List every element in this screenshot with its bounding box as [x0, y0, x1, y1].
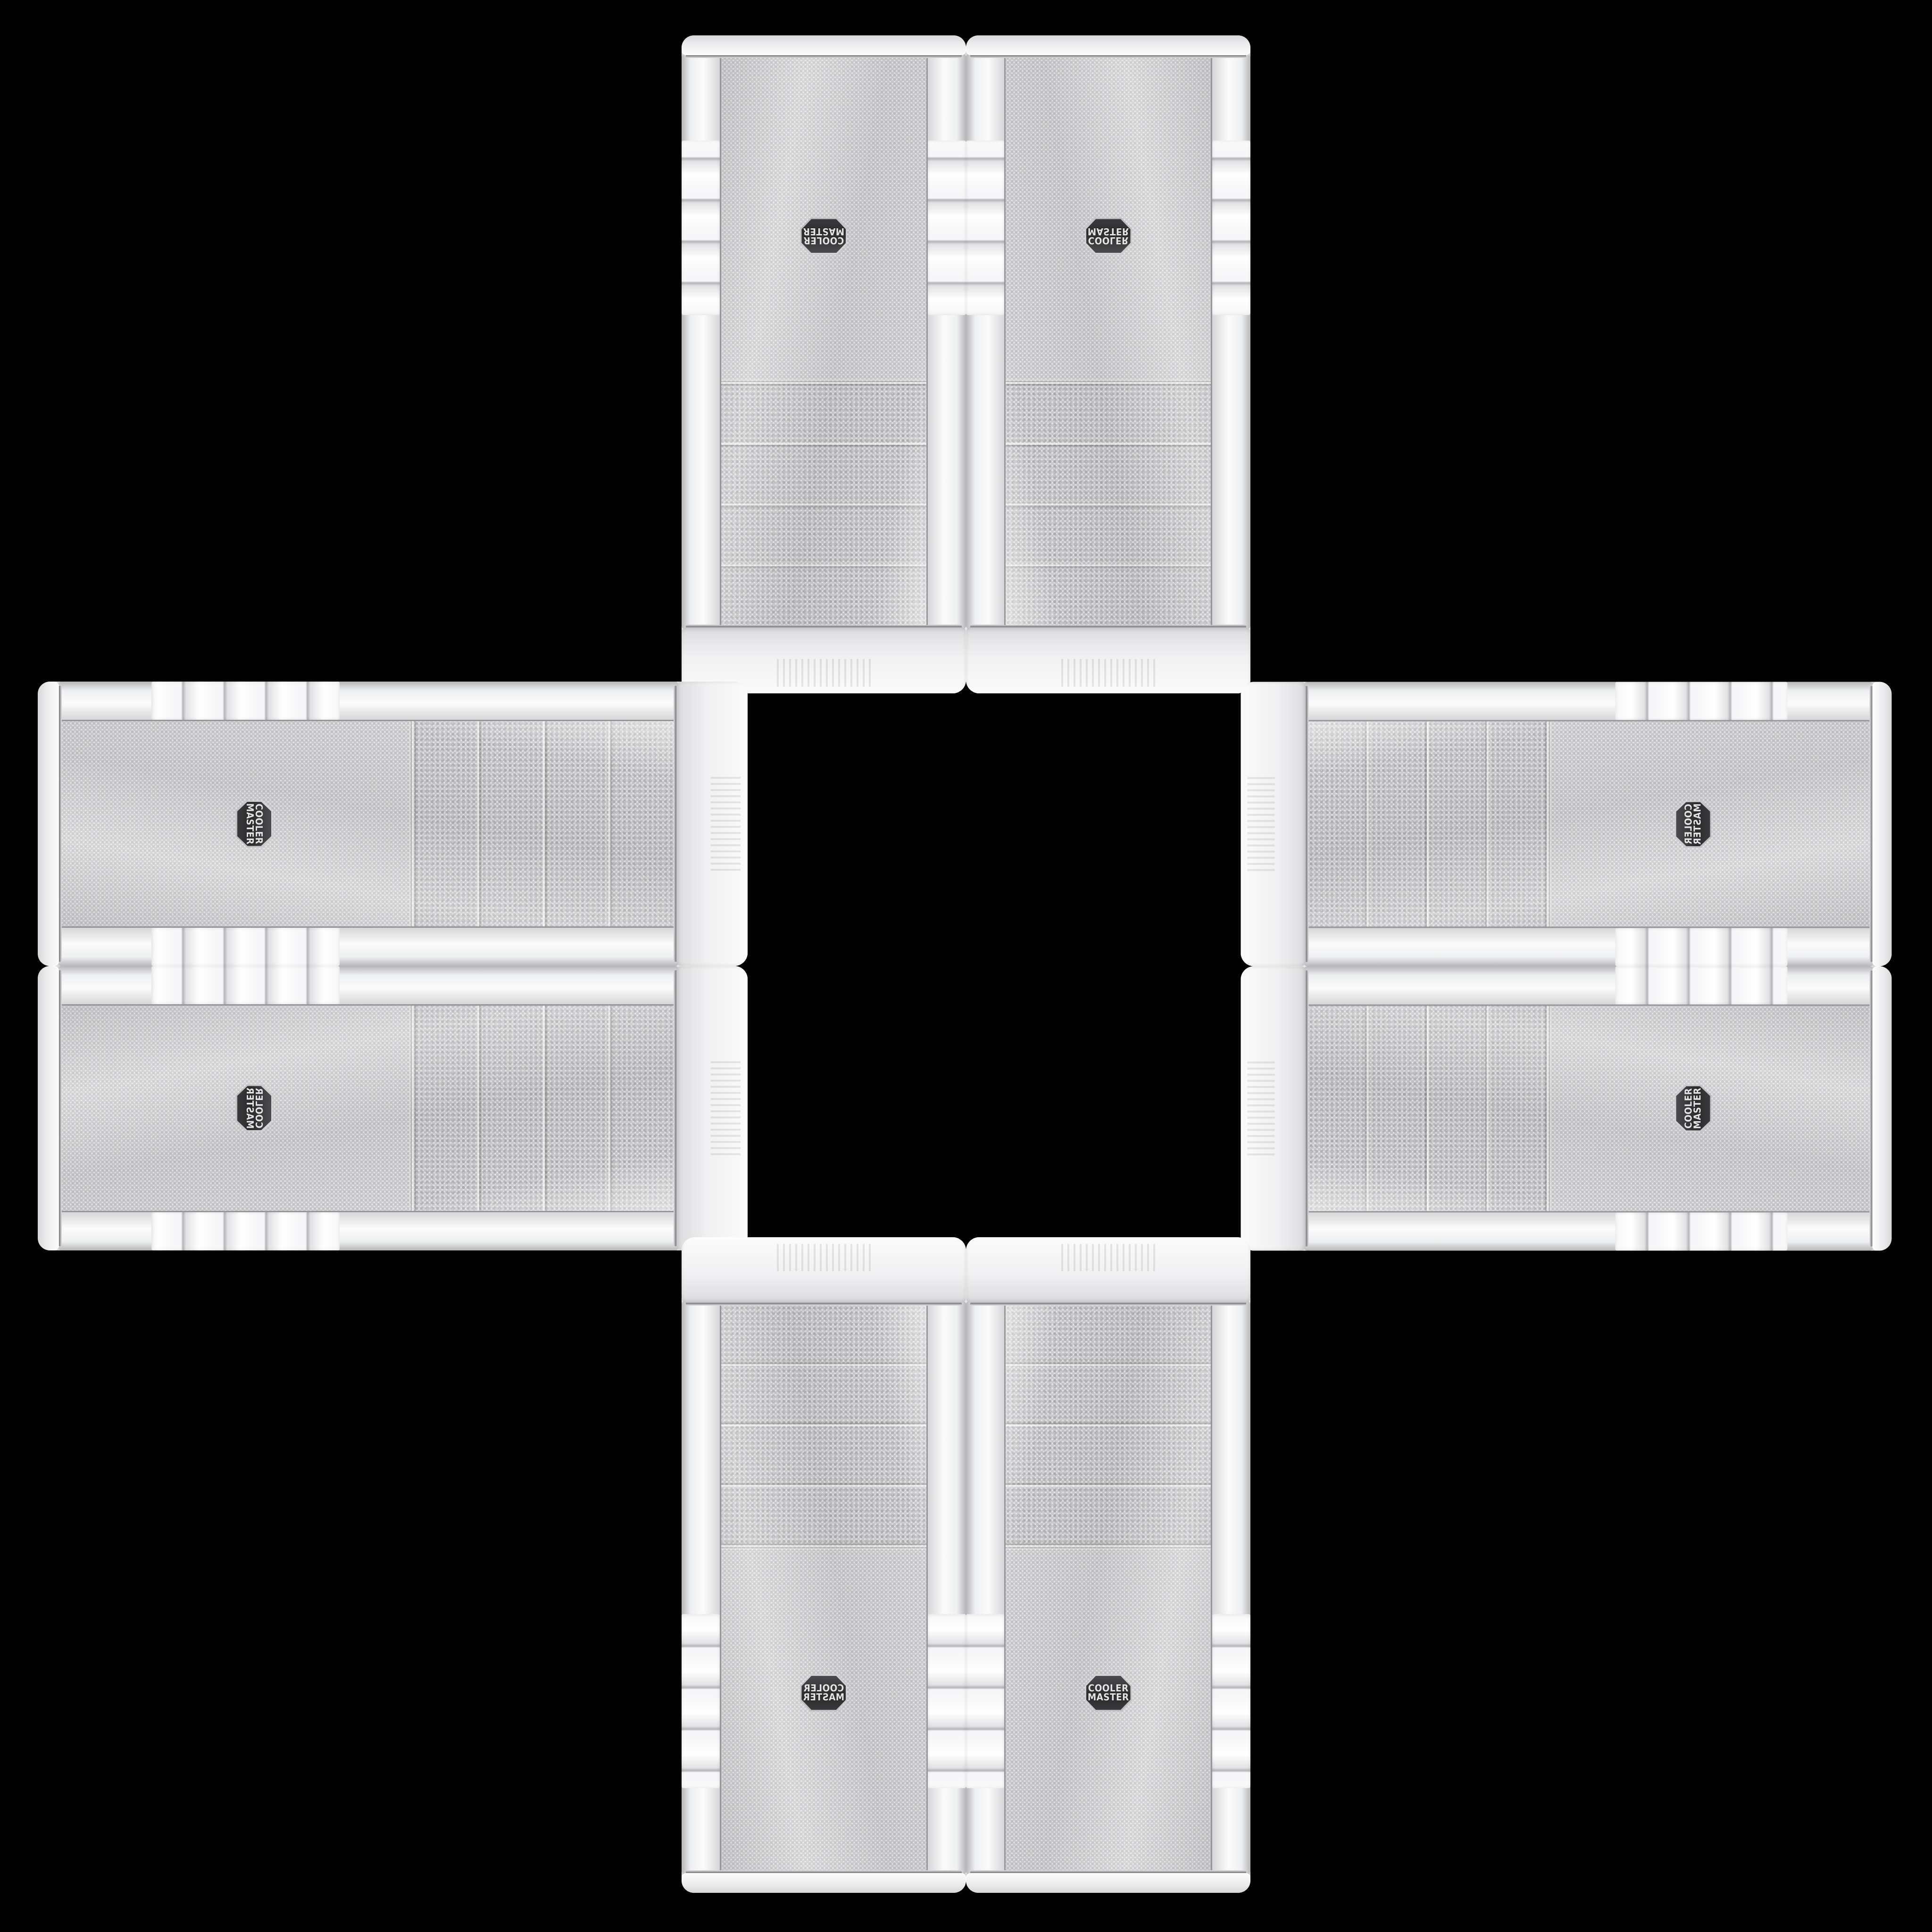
top-cap-vent-ribs — [711, 1057, 741, 1159]
chrome-trim-bottom — [59, 970, 62, 1246]
bottom-cap — [1872, 966, 1891, 1250]
front-mesh-panel: COOLER MASTER — [720, 1306, 927, 1872]
grip-ribs-right — [682, 141, 720, 315]
grip-ribs-left — [966, 141, 1004, 315]
pc-case-front-bezel: COOLER MASTER — [966, 1237, 1250, 1893]
logo-text-line2: MASTER — [245, 803, 254, 845]
top-cap-vent-ribs — [773, 659, 875, 687]
pc-case-front-bezel: COOLER MASTER — [38, 966, 748, 1250]
bottom-cap — [966, 35, 1250, 55]
front-mesh-panel: COOLER MASTER — [1308, 720, 1871, 927]
top-cap-vent-ribs — [1057, 1244, 1159, 1271]
grip-ribs-right — [151, 966, 340, 1004]
logo-text-line2: MASTER — [1088, 227, 1129, 236]
panel-sheen — [1006, 57, 1210, 625]
pc-case-top-left: COOLER MASTER — [682, 35, 966, 693]
grip-ribs-left — [151, 1212, 340, 1250]
bottom-cap — [682, 35, 966, 55]
logo-text-line2: MASTER — [1693, 803, 1702, 845]
product-collage-canvas: COOLER MASTER — [0, 0, 1932, 1932]
cooler-master-logo-face: COOLER MASTER — [237, 1086, 271, 1131]
top-cap-vent-ribs — [1247, 773, 1274, 875]
bottom-cap — [38, 682, 59, 966]
front-mesh-panel: COOLER MASTER — [1308, 1004, 1871, 1212]
bottom-cap — [682, 1873, 966, 1893]
front-mesh-panel: COOLER MASTER — [1004, 1306, 1212, 1872]
chrome-trim-top — [674, 686, 677, 962]
grip-ribs-left — [1615, 1212, 1788, 1250]
cooler-master-logo-badge: COOLER MASTER — [1674, 1085, 1711, 1132]
grip-ribs-left — [966, 1614, 1004, 1788]
grip-ribs-right — [1615, 966, 1788, 1004]
grip-ribs-right — [682, 1614, 720, 1788]
panel-sheen — [1308, 1006, 1871, 1210]
grip-ribs-right — [151, 928, 340, 966]
front-mesh-panel: COOLER MASTER — [60, 720, 674, 927]
chrome-trim-top — [686, 625, 962, 628]
bottom-cap — [1872, 682, 1891, 966]
top-cap — [966, 1237, 1250, 1303]
front-mesh-panel: COOLER MASTER — [1004, 57, 1212, 625]
grip-ribs-left — [151, 682, 340, 720]
cooler-master-logo-face: COOLER MASTER — [1086, 1676, 1131, 1710]
grip-ribs-left — [928, 1614, 966, 1788]
pc-case-front-bezel: COOLER MASTER — [1241, 682, 1891, 966]
pc-case-bottom-left: COOLER MASTER — [682, 1237, 966, 1893]
cooler-master-logo-badge: COOLER MASTER — [800, 218, 848, 255]
cooler-master-logo-badge: COOLER MASTER — [236, 800, 273, 848]
cooler-master-logo-badge: COOLER MASTER — [1085, 1674, 1132, 1711]
cooler-master-logo-face: COOLER MASTER — [1086, 219, 1131, 253]
panel-sheen — [60, 1006, 674, 1210]
cooler-master-logo-face: COOLER MASTER — [1676, 802, 1710, 846]
front-mesh-panel: COOLER MASTER — [720, 57, 927, 625]
logo-text-line2: MASTER — [1088, 1693, 1129, 1702]
panel-sheen — [1006, 1306, 1210, 1872]
panel-sheen — [721, 57, 926, 625]
side-rail-right — [1212, 1301, 1250, 1874]
cooler-master-logo-face: COOLER MASTER — [237, 802, 271, 846]
chrome-trim-bottom — [970, 55, 1246, 58]
pc-case-front-bezel: COOLER MASTER — [1241, 966, 1891, 1250]
pc-case-left-top: COOLER MASTER — [38, 682, 748, 966]
panel-sheen — [721, 1306, 926, 1872]
grip-ribs-left — [928, 141, 966, 315]
logo-text-line2: MASTER — [803, 1693, 845, 1702]
cooler-master-logo-face: COOLER MASTER — [802, 1676, 846, 1710]
chrome-trim-bottom — [1869, 686, 1872, 962]
panel-sheen — [60, 721, 674, 926]
chrome-trim-top — [674, 970, 677, 1246]
chrome-trim-top — [970, 625, 1246, 628]
panel-sheen — [1308, 721, 1871, 926]
top-cap — [677, 966, 748, 1250]
cooler-master-logo-face: COOLER MASTER — [802, 219, 846, 253]
top-cap-vent-ribs — [1247, 1057, 1274, 1159]
bottom-cap — [966, 1873, 1250, 1893]
top-cap-vent-ribs — [711, 773, 741, 875]
pc-case-top-right: COOLER MASTER — [966, 35, 1250, 693]
logo-text-line2: MASTER — [245, 1088, 254, 1129]
grip-ribs-right — [1212, 141, 1250, 315]
chrome-trim-bottom — [59, 686, 62, 962]
top-cap — [677, 682, 748, 966]
pc-case-bottom-right: COOLER MASTER — [966, 1237, 1250, 1893]
pc-case-front-bezel: COOLER MASTER — [38, 682, 748, 966]
chrome-trim-bottom — [686, 55, 962, 58]
bottom-cap — [38, 966, 59, 1250]
pc-case-front-bezel: COOLER MASTER — [966, 35, 1250, 693]
cooler-master-logo-badge: COOLER MASTER — [800, 1674, 848, 1711]
pc-case-right-bottom: COOLER MASTER — [1241, 966, 1891, 1250]
pc-case-front-bezel: COOLER MASTER — [682, 35, 966, 693]
pc-case-front-bezel: COOLER MASTER — [682, 1237, 966, 1893]
front-mesh-panel: COOLER MASTER — [60, 1004, 674, 1212]
side-rail-right — [682, 1301, 720, 1874]
cooler-master-logo-badge: COOLER MASTER — [1674, 800, 1711, 848]
cooler-master-logo-face: COOLER MASTER — [1676, 1086, 1710, 1131]
cooler-master-logo-badge: COOLER MASTER — [1085, 218, 1132, 255]
side-rail-left — [966, 1301, 1004, 1874]
top-cap — [1241, 682, 1306, 966]
grip-ribs-right — [1212, 1614, 1250, 1788]
grip-ribs-left — [1615, 682, 1788, 720]
grip-ribs-right — [1615, 928, 1788, 966]
logo-text-line2: MASTER — [1693, 1088, 1702, 1129]
top-cap — [1241, 966, 1306, 1250]
top-cap-vent-ribs — [1057, 659, 1159, 687]
logo-text-line2: MASTER — [803, 227, 845, 236]
top-cap-vent-ribs — [773, 1244, 875, 1271]
chrome-trim-bottom — [1869, 970, 1872, 1246]
top-cap — [682, 1237, 966, 1303]
pc-case-right-top: COOLER MASTER — [1241, 682, 1891, 966]
pc-case-left-bottom: COOLER MASTER — [38, 966, 748, 1250]
top-cap — [966, 628, 1250, 694]
cooler-master-logo-badge: COOLER MASTER — [236, 1085, 273, 1132]
side-rail-left — [928, 1301, 966, 1874]
